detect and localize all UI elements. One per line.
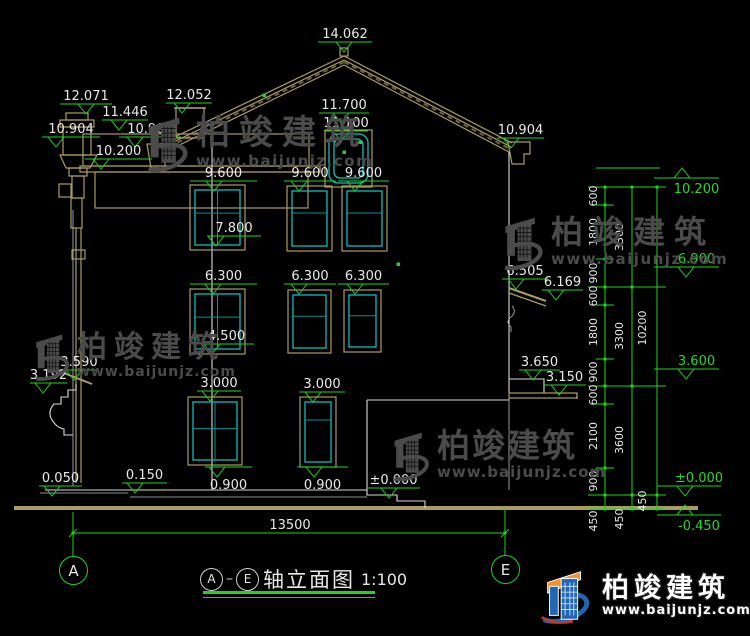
elevation-marker: 0.050 <box>39 471 82 496</box>
brand-logo-icon <box>536 562 598 630</box>
elevation-value: 10.904 <box>48 122 94 137</box>
elevation-value: 3.150 <box>546 370 583 385</box>
watermark-url: www.baijunjz.com <box>196 152 373 170</box>
window <box>287 186 332 251</box>
cad-grip-dot <box>263 94 267 98</box>
title-axis-a-bubble: A <box>200 568 223 591</box>
title-dash: – <box>226 571 233 587</box>
brand-logo-url: www.baijunjz.com <box>602 603 750 618</box>
elevation-marker: ±0.000 <box>657 471 723 496</box>
elevation-marker: 3.150 <box>543 370 586 395</box>
elevation-marker: 7.800 <box>207 221 261 246</box>
chain-dimension-value: 450 <box>636 491 649 512</box>
axis-bubble-a: A <box>59 556 88 585</box>
watermark-url: www.baijunjz.com <box>551 250 728 268</box>
chimney <box>59 113 97 483</box>
elevation-marker: 10.200 <box>654 168 719 197</box>
window <box>190 185 245 250</box>
cad-grip-dot <box>397 263 401 267</box>
elevation-drawing: 14.06212.07111.44612.05210.90410.90410.2… <box>0 0 750 636</box>
watermark-brand: 柏竣建筑 <box>196 116 373 152</box>
chain-dimension-value: 450 <box>587 511 600 532</box>
elevation-value: 6.169 <box>544 275 581 290</box>
title-underline <box>203 591 375 594</box>
brand-logo-text: 柏竣建筑 <box>602 574 750 604</box>
elevation-marker: 6.169 <box>542 275 583 300</box>
watermark-url: www.baijunjz.com <box>77 364 236 380</box>
right-canopy <box>508 288 546 332</box>
chain-dimension-value: 1800 <box>587 318 600 346</box>
elevation-value: 0.150 <box>126 468 163 483</box>
elevation-marker: 0.900 <box>297 467 348 493</box>
watermark: 柏竣建筑 www.baijunjz.com <box>27 325 236 387</box>
elevation-marker: 0.900 <box>205 467 252 493</box>
brand-logo: 柏竣建筑 www.baijunjz.com <box>536 562 750 630</box>
elevation-value: 10.200 <box>96 144 142 159</box>
watermark-builder-icon <box>138 104 192 182</box>
elevation-value: 6.300 <box>291 269 328 284</box>
chain-dimension-value: 600 <box>587 286 600 307</box>
elevation-value: 14.062 <box>322 27 368 42</box>
axis-bubble-e: E <box>491 555 520 584</box>
watermark-url: www.baijunjz.com <box>437 463 606 481</box>
elevation-value: 12.052 <box>166 88 212 103</box>
chain-dimension-value: 3300 <box>613 322 626 350</box>
window <box>188 397 242 465</box>
title-scale: 1:100 <box>361 570 407 589</box>
watermark-builder-icon <box>27 325 73 387</box>
axis-label: E <box>501 561 510 579</box>
watermark-builder-icon <box>495 207 547 277</box>
cad-elevation-canvas: 14.06212.07111.44612.05210.90410.90410.2… <box>0 0 750 636</box>
elevation-marker: 10.904 <box>497 123 544 148</box>
chain-dimension-value: 600 <box>587 385 600 406</box>
elevation-value: 12.071 <box>63 89 109 104</box>
title-underline <box>203 597 375 598</box>
watermark: 柏竣建筑 www.baijunjz.com <box>495 207 728 277</box>
elevation-value: 3.600 <box>678 354 715 369</box>
chain-dimension-value: 450 <box>613 509 626 530</box>
chain-dimension-value: 600 <box>587 186 600 207</box>
window <box>288 290 331 353</box>
overall-width-dimension: 13500 <box>269 518 310 533</box>
chain-dimension-value: 900 <box>587 362 600 383</box>
elevation-value: 6.300 <box>205 269 242 284</box>
watermark-brand: 柏竣建筑 <box>437 429 606 464</box>
window <box>344 290 381 352</box>
elevation-value: 0.050 <box>42 471 79 486</box>
watermark-brand: 柏竣建筑 <box>77 332 236 364</box>
elevation-value: 7.800 <box>215 221 252 236</box>
elevation-marker: 3.000 <box>299 377 345 402</box>
watermark: 柏竣建筑 www.baijunjz.com <box>138 104 373 182</box>
elevation-value: ±0.000 <box>675 471 723 486</box>
elevation-value: 0.900 <box>304 478 341 493</box>
elevation-value: 6.300 <box>345 269 382 284</box>
window <box>342 186 387 251</box>
elevation-value: 3.000 <box>303 377 340 392</box>
window <box>300 397 336 467</box>
elevation-marker: 6.300 <box>190 269 257 294</box>
entrance-steps <box>367 490 425 508</box>
elevation-value: -0.450 <box>678 519 720 534</box>
elevation-value: 10.200 <box>674 182 720 197</box>
chain-dimension-value: 10200 <box>636 311 649 346</box>
elevation-marker: 0.150 <box>122 468 167 493</box>
generated-annotations: 14.06212.07111.44612.05210.90410.90410.2… <box>30 27 723 534</box>
watermark-builder-icon <box>385 423 433 487</box>
title-text: 轴立面图 <box>263 564 355 594</box>
title-axis-e-bubble: E <box>236 568 259 591</box>
watermark: 柏竣建筑 www.baijunjz.com <box>385 423 606 487</box>
elevation-marker: 3.600 <box>654 354 719 379</box>
elevation-value: 0.900 <box>210 478 247 493</box>
watermark-brand: 柏竣建筑 <box>551 216 728 250</box>
elevation-value: 3.650 <box>521 355 558 370</box>
drawing-title: A – E 轴立面图 1:100 <box>200 564 407 594</box>
elevation-value: 10.904 <box>498 123 544 138</box>
chain-dimension-value: 3600 <box>613 426 626 454</box>
axis-label: A <box>68 562 78 580</box>
